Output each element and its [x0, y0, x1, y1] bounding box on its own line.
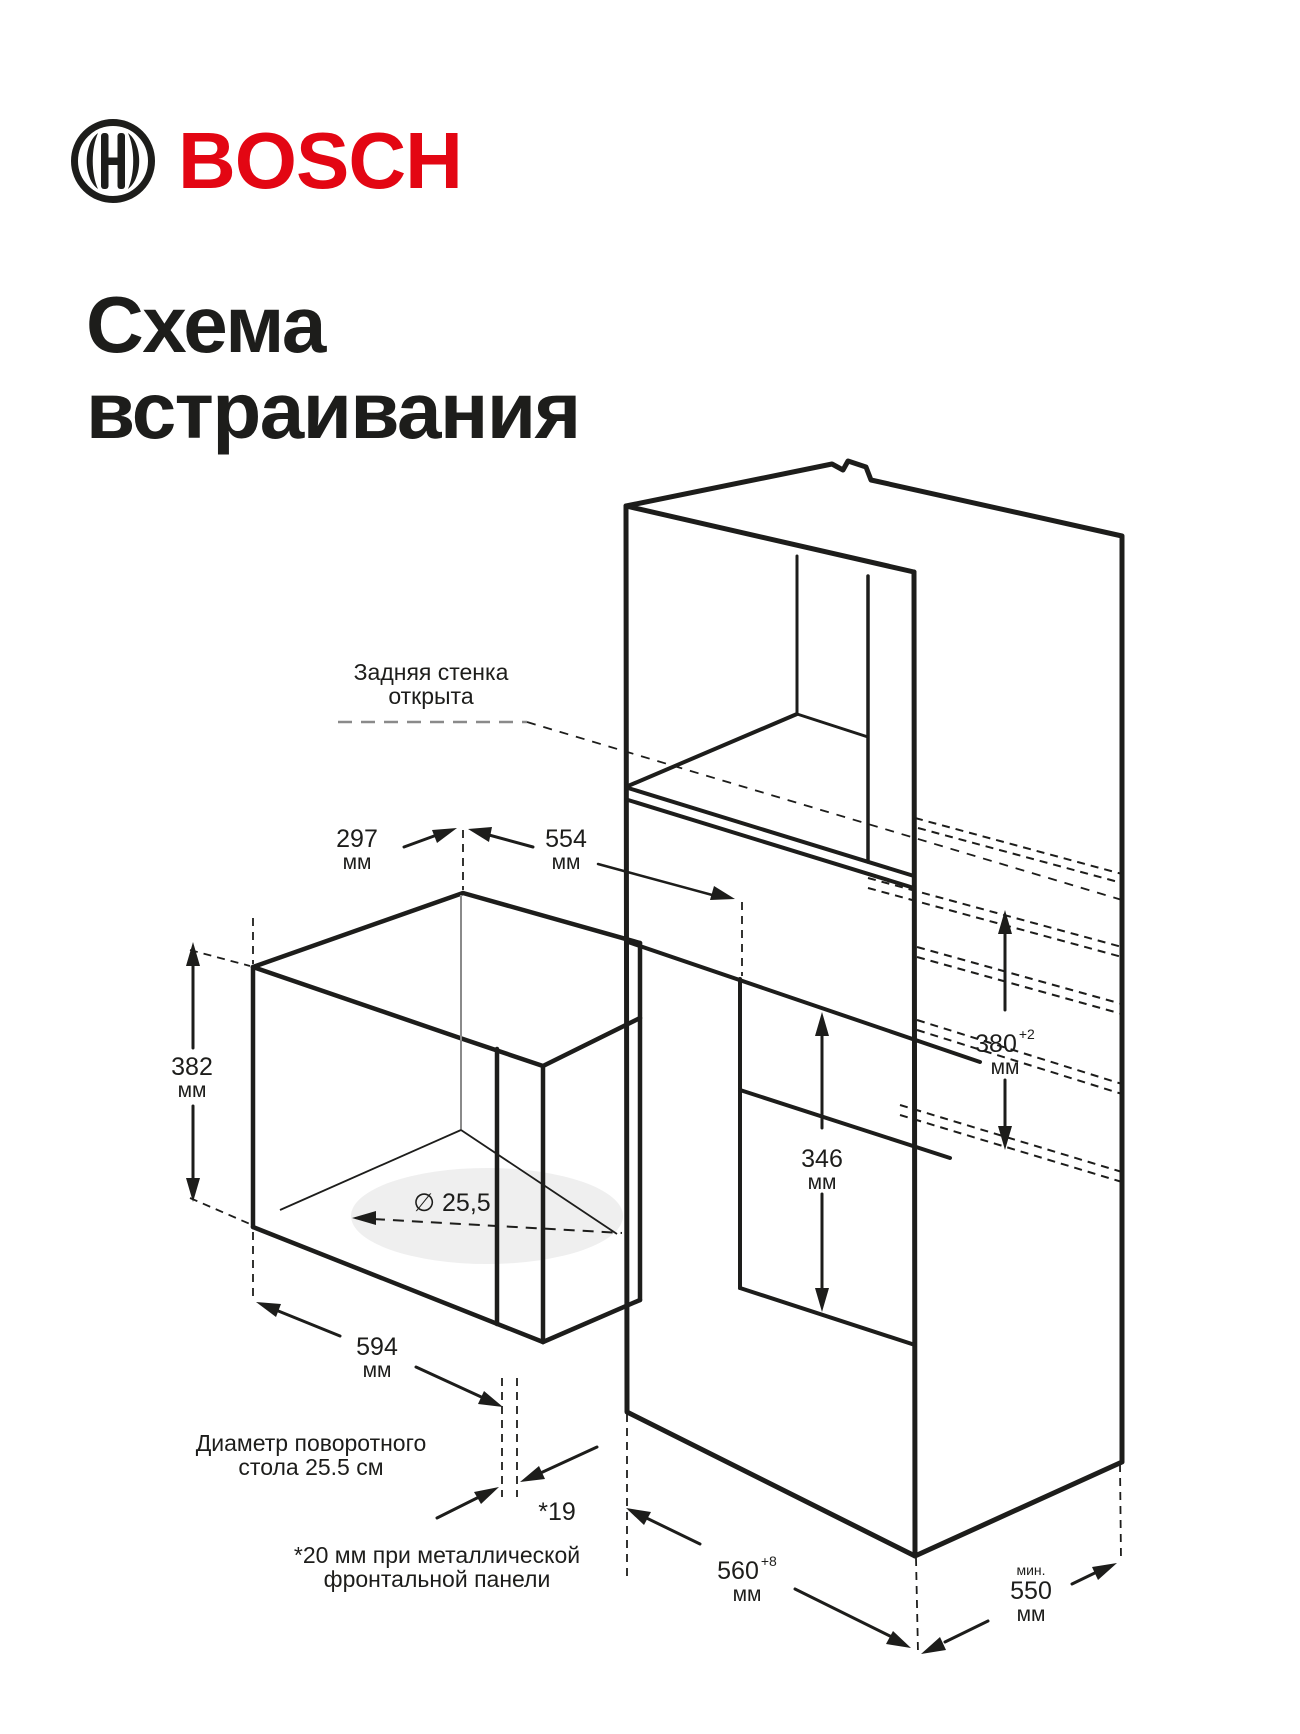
- dim-382: 382 мм: [171, 1054, 213, 1102]
- dim-protrusion-value: *19: [538, 1498, 576, 1526]
- dim-560-value: 560: [717, 1557, 759, 1585]
- turntable-note-line2: стола 25.5 см: [196, 1455, 427, 1479]
- dim-380: 380+2 мм: [975, 1021, 1035, 1079]
- dim-594-value: 594: [356, 1334, 398, 1360]
- page-title: Схема встраивания: [86, 282, 580, 454]
- dim-turntable-diameter-value: ∅ 25,5: [413, 1189, 490, 1217]
- dim-346-value: 346: [801, 1146, 843, 1172]
- dim-380-tolerance: +2: [1019, 1026, 1035, 1042]
- back-wall-note-line2: открыта: [354, 684, 509, 708]
- dim-297-value: 297: [336, 826, 378, 852]
- dim-560-unit: мм: [717, 1584, 777, 1606]
- page: BOSCH Схема встраивания Задняя стенка от…: [0, 0, 1300, 1734]
- dim-380-value: 380: [975, 1030, 1017, 1058]
- front-panel-note-line2: фронтальной панели: [294, 1567, 580, 1591]
- dim-594-unit: мм: [356, 1360, 398, 1382]
- dim-594: 594 мм: [356, 1334, 398, 1382]
- dim-554-value: 554: [545, 826, 587, 852]
- dim-560: 560+8 мм: [717, 1548, 777, 1606]
- dim-382-value: 382: [171, 1054, 213, 1080]
- front-panel-note: *20 мм при металлической фронтальной пан…: [294, 1543, 580, 1591]
- dim-346: 346 мм: [801, 1146, 843, 1194]
- dim-297-unit: мм: [336, 852, 378, 874]
- back-wall-leader-dashes: [338, 722, 1122, 900]
- dimension-lines: [193, 832, 1103, 1642]
- dim-protrusion: *19: [538, 1499, 576, 1525]
- turntable-note-line1: Диаметр поворотного: [196, 1431, 427, 1455]
- back-wall-note-line1: Задняя стенка: [354, 660, 509, 684]
- dim-382-unit: мм: [171, 1080, 213, 1102]
- page-title-line2: встраивания: [86, 368, 580, 454]
- front-panel-note-line1: *20 мм при металлической: [294, 1543, 580, 1567]
- bosch-armature-icon: [70, 118, 156, 204]
- dim-554: 554 мм: [545, 826, 587, 874]
- dim-380-unit: мм: [975, 1057, 1035, 1079]
- bosch-logo: BOSCH: [70, 118, 462, 204]
- back-wall-note: Задняя стенка открыта: [354, 660, 509, 708]
- dim-297: 297 мм: [336, 826, 378, 874]
- microwave-box: [253, 893, 640, 1342]
- dim-550: мин. 550 мм: [1010, 1562, 1052, 1626]
- dim-550-prefix: мин.: [1010, 1562, 1052, 1578]
- dim-560-tolerance: +8: [761, 1553, 777, 1569]
- dim-550-unit: мм: [1010, 1604, 1052, 1626]
- dim-550-value: 550: [1010, 1578, 1052, 1604]
- brand-wordmark: BOSCH: [178, 118, 462, 204]
- page-title-line1: Схема: [86, 282, 580, 368]
- cabinet-outline: [626, 461, 1122, 1556]
- dim-554-unit: мм: [545, 852, 587, 874]
- dim-346-unit: мм: [801, 1172, 843, 1194]
- turntable-note: Диаметр поворотного стола 25.5 см: [196, 1431, 427, 1479]
- dim-turntable-diameter: ∅ 25,5: [413, 1190, 490, 1216]
